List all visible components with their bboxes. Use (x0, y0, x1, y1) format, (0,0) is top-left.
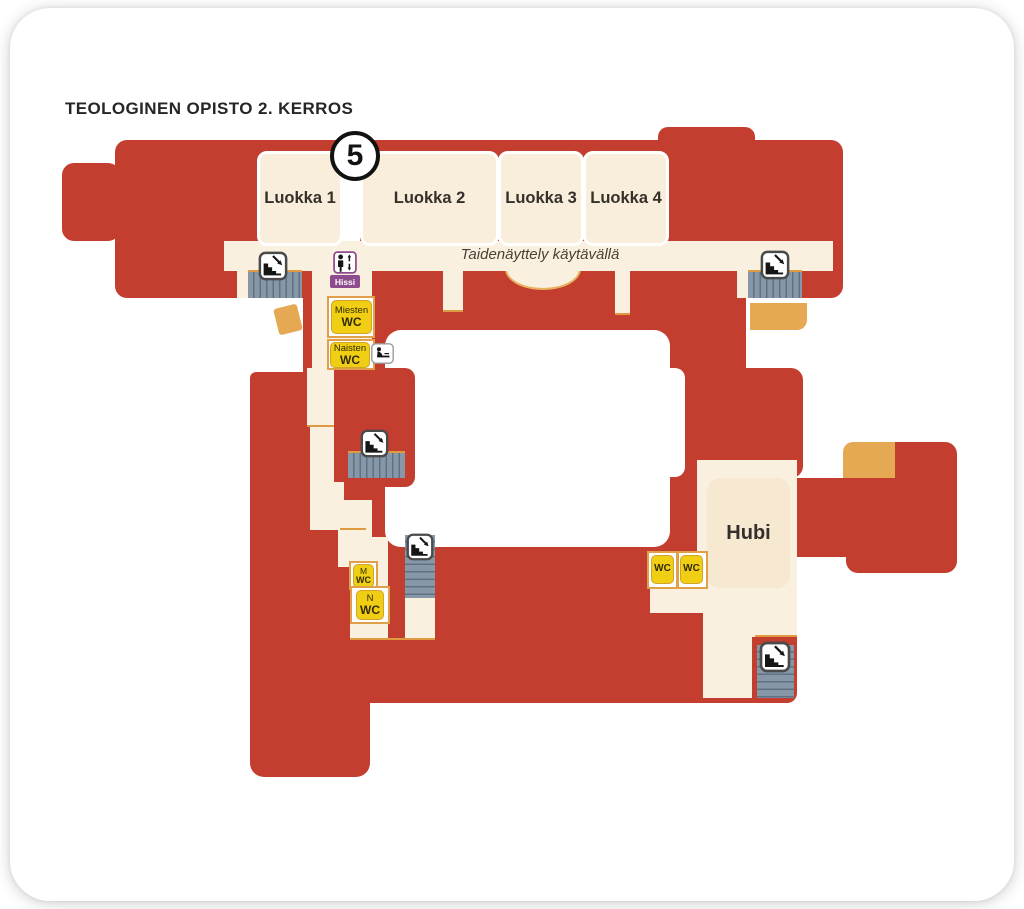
stairs-icon (406, 533, 434, 561)
mens-wc-sign: Miesten WC (331, 300, 372, 334)
ramp-top-right (750, 303, 807, 330)
ramp-left (273, 303, 303, 335)
building-block-top-bump (658, 127, 755, 151)
building-block-mid-right-column (682, 291, 746, 370)
building-block-hub-left-wall (667, 470, 697, 560)
corridor-segment (752, 587, 797, 637)
door-gap-1 (443, 270, 463, 312)
wall-line (340, 528, 366, 530)
sign-line: WC (654, 564, 671, 574)
wc-sign-left: WC (651, 555, 674, 584)
corridor-segment (307, 368, 334, 426)
door-gap-right (737, 270, 748, 298)
corridor-segment (310, 426, 334, 484)
stairs-icon (360, 429, 389, 458)
door-gap-left (237, 270, 248, 298)
room-luokka-3: Luokka 3 (498, 151, 584, 246)
floor-number-badge: 5 (330, 131, 380, 181)
stairs-icon (760, 250, 790, 280)
room-luokka-2: Luokka 2 (360, 151, 499, 246)
building-block-connector (795, 478, 846, 557)
room-luokka-1: Luokka 1 (257, 151, 343, 246)
ramp-far-wing (843, 442, 895, 478)
sign-line: WC (683, 564, 700, 574)
wc-sign-right: WC (680, 555, 703, 584)
corridor-note: Taidenäyttely käytävällä (420, 246, 660, 263)
sign-line: WC (356, 576, 371, 585)
room-hubi: Hubi (707, 478, 790, 588)
n-wc-sign: N WC (356, 590, 384, 620)
courtyard-extension (660, 368, 685, 477)
stairs-icon (258, 251, 288, 281)
wall-line (307, 425, 334, 427)
room-label: Luokka 4 (590, 189, 662, 208)
sign-line: WC (342, 316, 362, 328)
corridor-segment (650, 587, 703, 613)
wall-line (615, 313, 630, 315)
stairs-divider-wall (752, 637, 757, 703)
page-title: TEOLOGINEN OPISTO 2. KERROS (65, 99, 353, 119)
room-luokka-4: Luokka 4 (583, 151, 669, 246)
stairs-icon (759, 641, 791, 673)
room-label: Luokka 3 (505, 189, 577, 208)
wall-line (755, 635, 797, 637)
courtyard (385, 330, 670, 547)
wall-line (443, 310, 463, 312)
corridor-segment (338, 500, 372, 540)
floor-plan: Luokka 1 Luokka 2 Luokka 3 Luokka 4 Hubi… (0, 0, 1024, 909)
sign-line: WC (340, 354, 360, 366)
sign-line: WC (360, 604, 380, 616)
baby-changing-icon (371, 343, 394, 364)
womens-wc-sign: Naisten WC (330, 342, 370, 368)
door-gap-2 (615, 270, 630, 315)
room-label: Hubi (726, 522, 770, 545)
room-label: Luokka 2 (394, 189, 466, 208)
corridor-segment (703, 587, 752, 698)
elevator-label: Hissi (330, 275, 360, 288)
wall-line (350, 638, 435, 640)
elevator-label-text: Hissi (335, 277, 355, 287)
corridor-segment (405, 598, 435, 638)
m-wc-sign: M WC (353, 564, 374, 588)
room-label: Luokka 1 (264, 189, 336, 208)
elevator-icon (333, 251, 357, 274)
building-block-left-arm (62, 163, 120, 241)
